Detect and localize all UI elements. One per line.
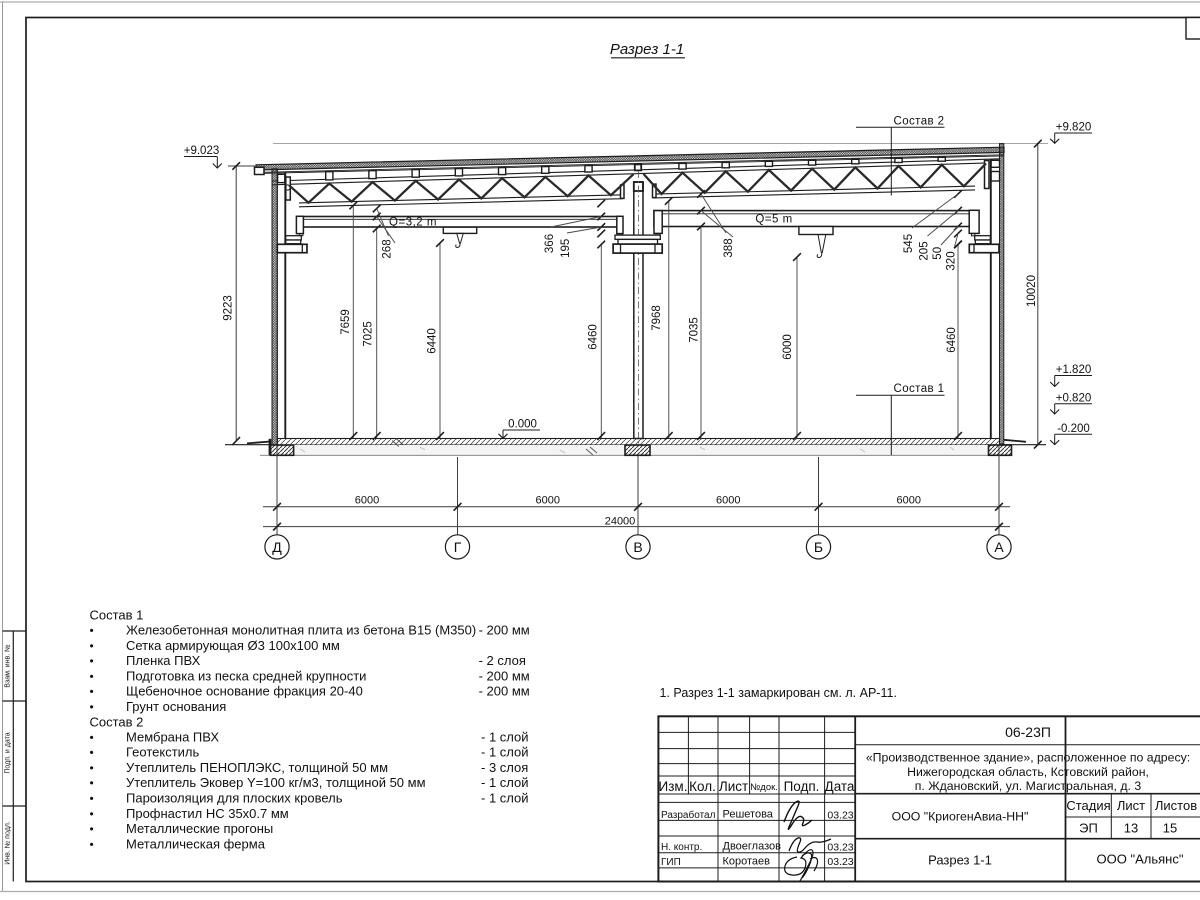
svg-text:Подготовка из песка средней кр: Подготовка из песка средней крупности <box>126 668 366 683</box>
svg-text:03.23: 03.23 <box>827 856 853 868</box>
svg-text:545: 545 <box>903 234 915 253</box>
svg-text:7968: 7968 <box>651 305 663 331</box>
svg-text:7035: 7035 <box>689 317 701 343</box>
svg-text:•: • <box>90 792 94 806</box>
svg-text:50: 50 <box>932 247 944 260</box>
svg-text:7659: 7659 <box>340 309 352 335</box>
svg-text:Кол.: Кол. <box>689 779 716 794</box>
svg-text:388: 388 <box>723 238 735 257</box>
svg-text:6460: 6460 <box>946 327 958 353</box>
svg-text:Состав 2: Состав 2 <box>894 115 945 127</box>
svg-text:п. Ждановский, ул. Магистральн: п. Ждановский, ул. Магистральная, д. 3 <box>915 779 1142 793</box>
svg-text:Б: Б <box>814 539 823 555</box>
svg-text:205: 205 <box>919 241 931 260</box>
svg-text:Подп. и дата: Подп. и дата <box>5 732 12 773</box>
svg-text:Геотекстиль: Геотекстиль <box>126 745 200 760</box>
svg-text:Разрез 1-1: Разрез 1-1 <box>928 853 992 868</box>
svg-text:1. Разрез 1-1 замаркирован см.: 1. Разрез 1-1 замаркирован см. л. АР-11. <box>660 686 897 700</box>
svg-text:Дата: Дата <box>825 779 855 794</box>
svg-text:•: • <box>90 654 94 668</box>
svg-text:•: • <box>90 807 94 821</box>
svg-text:Щебеночное основание фракция 2: Щебеночное основание фракция 20-40 <box>126 684 363 699</box>
svg-text:Д: Д <box>272 539 282 555</box>
svg-text:6000: 6000 <box>536 494 560 506</box>
svg-text:Подп.: Подп. <box>784 779 820 794</box>
svg-text:- 200 мм: - 200 мм <box>479 684 530 699</box>
svg-text:03.23: 03.23 <box>827 810 853 822</box>
svg-text:Металлическая ферма: Металлическая ферма <box>126 836 266 851</box>
svg-text:«Производственное здание», рас: «Производственное здание», расположенное… <box>866 751 1190 765</box>
svg-text:ООО "КриогенАвиа-НН": ООО "КриогенАвиа-НН" <box>892 810 1029 824</box>
svg-text:- 2 слоя: - 2 слоя <box>479 653 526 668</box>
svg-text:•: • <box>90 700 94 714</box>
svg-text:- 1 слой: - 1 слой <box>481 745 529 760</box>
svg-text:Двоеглазов: Двоеглазов <box>723 841 782 853</box>
svg-text:+0.820: +0.820 <box>1056 392 1092 404</box>
svg-text:•: • <box>90 837 94 851</box>
svg-text:Пароизоляция для плоских крове: Пароизоляция для плоских кровель <box>126 791 343 806</box>
svg-text:•: • <box>90 685 94 699</box>
svg-text:0.000: 0.000 <box>508 419 537 431</box>
svg-text:ООО "Альянс": ООО "Альянс" <box>1097 852 1184 867</box>
svg-text:13: 13 <box>1124 821 1138 836</box>
svg-text:А: А <box>994 539 1004 555</box>
svg-text:Стадия: Стадия <box>1066 798 1110 813</box>
svg-text:Лист: Лист <box>719 779 748 794</box>
svg-text:- 200 мм: - 200 мм <box>479 668 530 683</box>
svg-text:10020: 10020 <box>1026 275 1038 307</box>
svg-text:- 1 слой: - 1 слой <box>481 775 529 790</box>
svg-text:•: • <box>90 746 94 760</box>
svg-text:Инв. № подл.: Инв. № подл. <box>5 821 12 865</box>
svg-text:•: • <box>90 822 94 836</box>
svg-text:7025: 7025 <box>363 321 375 347</box>
svg-text:•: • <box>90 776 94 790</box>
svg-text:ГИП: ГИП <box>661 857 681 868</box>
svg-text:+9.820: +9.820 <box>1056 122 1092 134</box>
svg-text:6000: 6000 <box>716 494 740 506</box>
svg-text:Q=3,2 m: Q=3,2 m <box>389 216 437 228</box>
svg-text:15: 15 <box>1163 821 1177 836</box>
svg-text:268: 268 <box>382 239 394 258</box>
svg-text:Н. контр.: Н. контр. <box>661 842 702 853</box>
svg-text:Коротаев: Коротаев <box>723 855 771 867</box>
svg-text:Взам. инв. №: Взам. инв. № <box>5 644 12 687</box>
svg-text:•: • <box>90 624 94 638</box>
svg-text:Разрез 1-1: Разрез 1-1 <box>610 41 684 58</box>
svg-text:Утеплитель Эковер Y=100 кг/м3,: Утеплитель Эковер Y=100 кг/м3, толщиной … <box>126 775 426 790</box>
svg-text:Г: Г <box>454 539 462 555</box>
svg-text:Q=5 m: Q=5 m <box>755 214 792 226</box>
svg-text:-0.200: -0.200 <box>1057 423 1090 435</box>
svg-text:366: 366 <box>544 234 556 253</box>
svg-text:Пленка ПВХ: Пленка ПВХ <box>126 653 201 668</box>
svg-text:Решетова: Решетова <box>723 809 774 821</box>
svg-text:№док.: №док. <box>750 782 778 793</box>
svg-text:06-23П: 06-23П <box>1005 724 1051 740</box>
svg-text:+9.023: +9.023 <box>184 145 220 157</box>
svg-text:195: 195 <box>560 239 572 258</box>
svg-text:Состав 2: Состав 2 <box>90 714 144 729</box>
svg-text:- 3 слоя: - 3 слоя <box>481 760 528 775</box>
svg-text:- 1 слой: - 1 слой <box>481 729 529 744</box>
svg-text:03.23: 03.23 <box>827 842 853 854</box>
svg-text:Мембрана ПВХ: Мембрана ПВХ <box>126 729 219 744</box>
svg-text:•: • <box>90 669 94 683</box>
svg-text:Листов: Листов <box>1155 798 1197 813</box>
svg-text:Изм.: Изм. <box>659 779 688 794</box>
svg-text:6460: 6460 <box>588 324 600 350</box>
svg-text:6000: 6000 <box>897 494 921 506</box>
svg-text:Разработал: Разработал <box>661 809 716 821</box>
svg-text:6000: 6000 <box>782 334 794 360</box>
svg-text:24000: 24000 <box>605 516 636 528</box>
svg-text:- 1 слой: - 1 слой <box>481 791 529 806</box>
svg-text:•: • <box>90 761 94 775</box>
svg-text:9223: 9223 <box>223 295 235 321</box>
svg-text:ЭП: ЭП <box>1079 821 1098 836</box>
svg-text:6440: 6440 <box>427 328 439 354</box>
svg-text:- 200 мм: - 200 мм <box>479 623 530 638</box>
svg-text:320: 320 <box>946 251 958 270</box>
svg-text:Железобетонная монолитная плит: Железобетонная монолитная плита из бетон… <box>126 623 476 638</box>
svg-text:Состав 1: Состав 1 <box>894 383 945 395</box>
svg-text:+1.820: +1.820 <box>1056 364 1092 376</box>
svg-text:Грунт основания: Грунт основания <box>126 699 226 714</box>
svg-text:•: • <box>90 730 94 744</box>
svg-text:Профнастил НС 35х0.7 мм: Профнастил НС 35х0.7 мм <box>126 806 289 821</box>
svg-text:Металлические прогоны: Металлические прогоны <box>126 821 273 836</box>
svg-text:Лист: Лист <box>1117 798 1145 813</box>
svg-text:Состав 1: Состав 1 <box>90 608 144 623</box>
svg-text:6000: 6000 <box>355 494 379 506</box>
svg-text:Сетка армирующая Ø3 100x100 мм: Сетка армирующая Ø3 100x100 мм <box>126 638 340 653</box>
svg-text:Нижегородская область, Кстовск: Нижегородская область, Кстовский район, <box>907 765 1149 779</box>
svg-text:Утеплитель ПЕНОПЛЭКС, толщиной: Утеплитель ПЕНОПЛЭКС, толщиной 50 мм <box>126 760 388 775</box>
svg-text:В: В <box>633 539 642 555</box>
svg-text:•: • <box>90 639 94 653</box>
